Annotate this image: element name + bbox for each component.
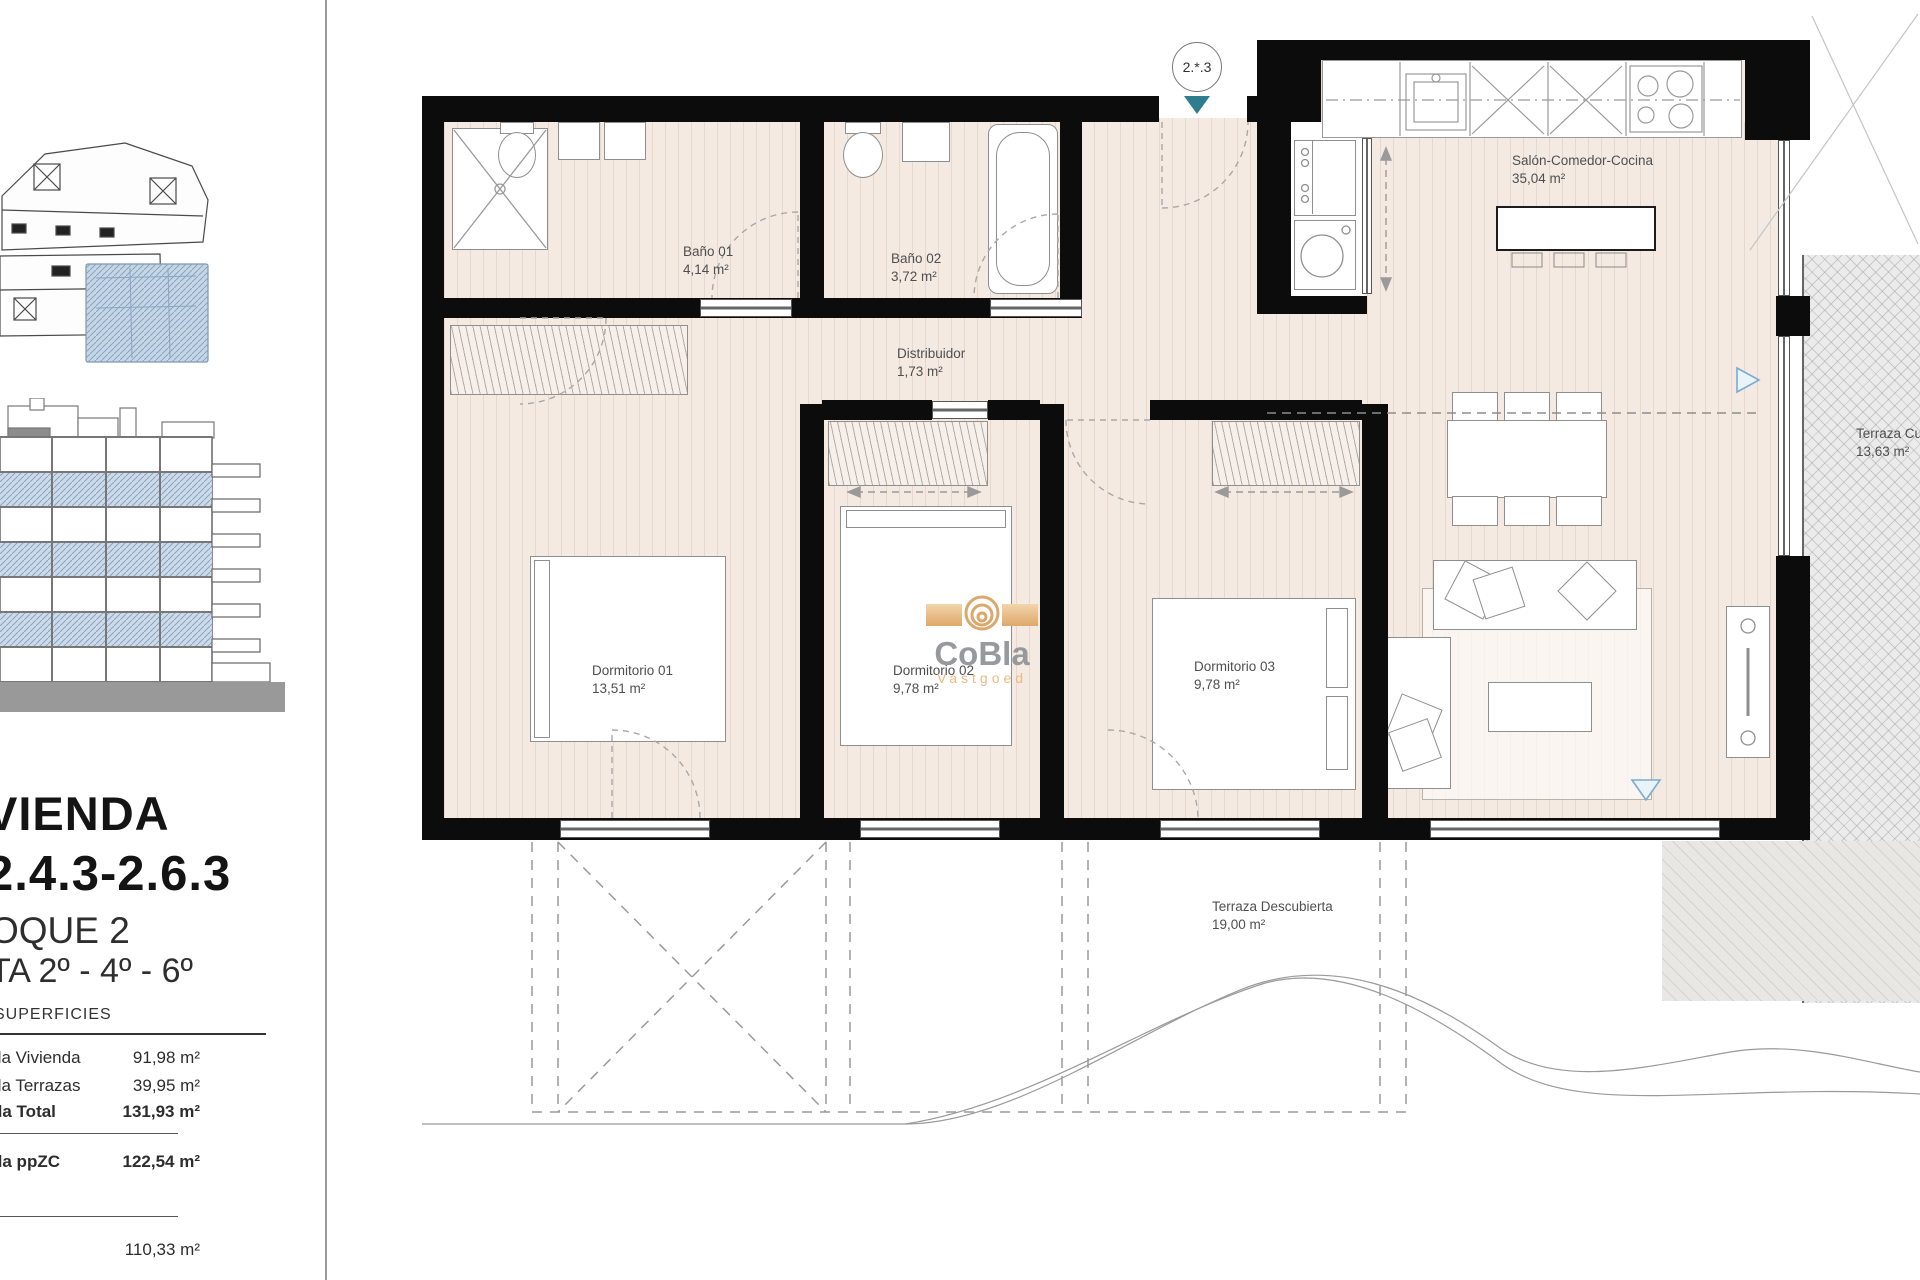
watermark-logo: CoBla Vastgoed: [912, 592, 1052, 685]
room-label-terraza-descubierta: Terraza Descubierta 19,00 m²: [1212, 898, 1333, 933]
room-area: 35,04 m²: [1512, 170, 1653, 188]
room-name: Terraza Cu: [1856, 425, 1920, 443]
watermark-text-cobla: CoBla: [912, 637, 1052, 670]
cobla-logo-icon: [920, 592, 1044, 634]
room-area: 13,51 m²: [592, 680, 673, 698]
entrance-direction-icon: [1184, 96, 1210, 114]
sliding-door-arrows: [848, 148, 1391, 497]
washer-details: [1301, 149, 1350, 278]
room-area: 4,14 m²: [683, 261, 733, 279]
room-area: 9,78 m²: [1194, 676, 1275, 694]
room-name: Dormitorio 01: [592, 662, 673, 680]
room-area: 19,00 m²: [1212, 916, 1333, 934]
room-name: Distribuidor: [897, 345, 965, 363]
roof-overhang-lines: [1750, 14, 1918, 250]
room-label-distribuidor: Distribuidor 1,73 m²: [897, 345, 965, 380]
room-name: Baño 02: [891, 250, 941, 268]
watermark-text-vastgoed: Vastgoed: [912, 671, 1052, 685]
room-label-terraza-cubierta: Terraza Cu 13,63 m²: [1856, 425, 1920, 460]
airflow-triangle-icons: [1632, 368, 1759, 800]
shower-x: [454, 130, 546, 248]
room-name: Dormitorio 03: [1194, 658, 1275, 676]
terrace-boundary-dashed: [532, 842, 1406, 1112]
room-label-dorm1: Dormitorio 01 13,51 m²: [592, 662, 673, 697]
unit-entrance-tag: 2.*.3: [1172, 42, 1222, 92]
room-area: 3,72 m²: [891, 268, 941, 286]
room-name: Baño 01: [683, 243, 733, 261]
floorplan-page: VIENDA 2.4.3-2.6.3 OQUE 2 TA 2º - 4º - 6…: [0, 0, 1920, 1280]
room-label-bath2: Baño 02 3,72 m²: [891, 250, 941, 285]
door-arcs: [520, 122, 1248, 818]
room-label-bath1: Baño 01 4,14 m²: [683, 243, 733, 278]
radiator-details: [1741, 619, 1755, 745]
room-name: Salón-Comedor-Cocina: [1512, 152, 1653, 170]
room-label-salon: Salón-Comedor-Cocina 35,04 m²: [1512, 152, 1653, 187]
room-label-dorm3: Dormitorio 03 9,78 m²: [1194, 658, 1275, 693]
room-name: Terraza Descubierta: [1212, 898, 1333, 916]
room-area: 1,73 m²: [897, 363, 965, 381]
terrain-contours: [422, 975, 1920, 1124]
room-area: 13,63 m²: [1856, 443, 1920, 461]
